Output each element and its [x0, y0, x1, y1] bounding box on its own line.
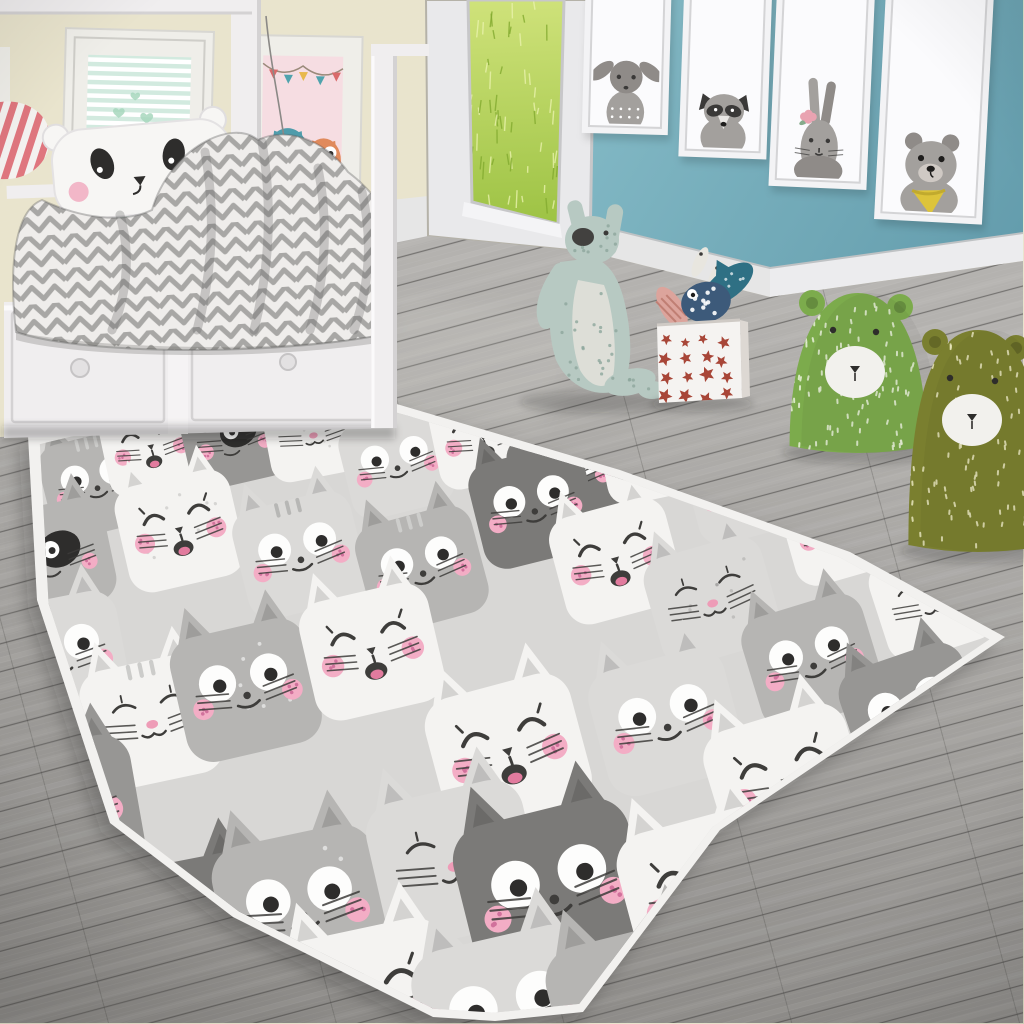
- portrait-fawn: [582, 0, 676, 141]
- kids-room-photo: [0, 0, 1024, 1024]
- stool-eye: [830, 327, 836, 333]
- drawer-knob: [71, 359, 89, 377]
- scene-illustration: [0, 0, 1024, 1024]
- stool-eye: [992, 378, 998, 384]
- portrait-raccoon: [678, 0, 776, 166]
- bunny-nose-patch: [572, 228, 594, 246]
- stool-eye: [947, 375, 953, 381]
- stool-eye: [873, 329, 879, 335]
- window: [426, 0, 594, 252]
- portrait-hare: [768, 0, 880, 196]
- underbed-shadow: [2, 426, 395, 439]
- bed-top-beam: [0, 0, 252, 13]
- bed-top-rail: [371, 44, 429, 56]
- portrait-bear: [874, 0, 1001, 231]
- bunny-eye: [604, 231, 609, 236]
- drawer-knob: [280, 354, 296, 370]
